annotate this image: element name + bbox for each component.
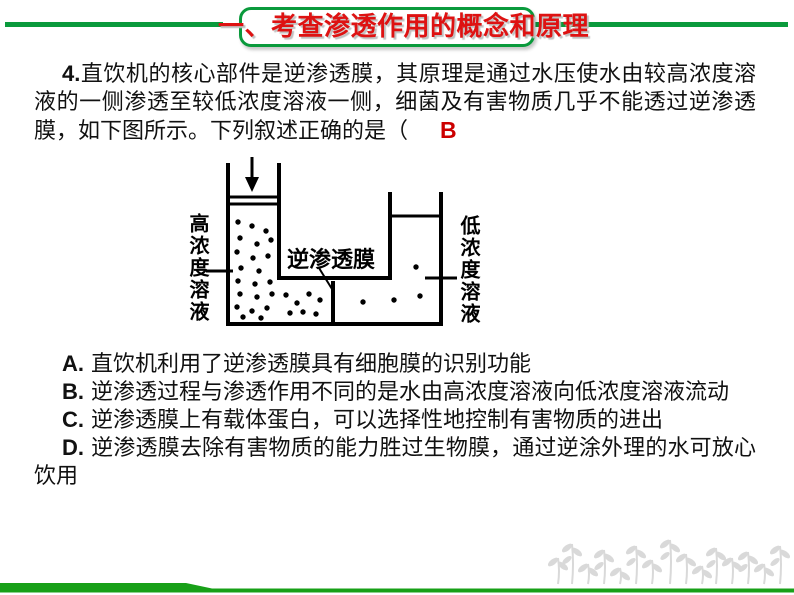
option-text: 逆渗透过程与渗透作用不同的是水由高浓度溶液向低浓度溶液流动 [91, 379, 729, 404]
solute-dot [267, 279, 272, 284]
solute-dot [238, 265, 243, 270]
solute-dot [360, 299, 365, 304]
option-text: 逆渗透膜去除有害物质的能力胜过生物膜，通过逆涂外理的水可放心饮用 [34, 435, 756, 488]
solute-dot [252, 281, 257, 286]
solute-dot [300, 309, 305, 314]
option-letter: B. [62, 379, 84, 404]
solute-dot [254, 294, 259, 299]
solute-dot [240, 314, 245, 319]
solute-dot [268, 237, 273, 242]
option-letter: D. [62, 435, 84, 460]
answer-letter: B [440, 117, 457, 143]
bottom-green-bar [0, 581, 794, 595]
plants-decoration-icon [548, 538, 790, 586]
page-title: 一、考查渗透作用的概念和原理 [218, 10, 589, 42]
option-letter: C. [62, 407, 84, 432]
solute-dot [234, 304, 239, 309]
solute-dot [235, 219, 240, 224]
solute-dot [237, 291, 242, 296]
solute-dot [265, 253, 270, 258]
option-C: C.逆渗透膜上有载体蛋白，可以选择性地控制有害物质的进出 [34, 406, 756, 434]
solute-dot [249, 223, 254, 228]
solute-dot [235, 278, 240, 283]
solute-dot [250, 255, 255, 260]
diagram-label-high-concentration: 高浓度溶液 [186, 213, 208, 323]
solute-dot [283, 292, 288, 297]
solute-dot [287, 310, 292, 315]
options-list: A.直饮机利用了逆渗透膜具有细胞膜的识别功能B.逆渗透过程与渗透作用不同的是水由… [34, 350, 756, 490]
piston [230, 197, 277, 204]
solute-dot [417, 293, 422, 298]
option-A: A.直饮机利用了逆渗透膜具有细胞膜的识别功能 [34, 350, 756, 378]
header-divider-line-left [5, 22, 223, 27]
solute-dot [237, 235, 242, 240]
solute-dot [258, 315, 263, 320]
question-text: 4.直饮机的核心部件是逆渗透膜，其原理是通过水压使水由较高浓度溶液的一侧渗透至较… [34, 60, 756, 145]
option-D: D.逆渗透膜去除有害物质的能力胜过生物膜，通过逆涂外理的水可放心饮用 [34, 434, 756, 490]
solute-dot [249, 308, 254, 313]
diagram-label-low-concentration: 低浓度溶液 [457, 215, 479, 325]
option-text: 直饮机利用了逆渗透膜具有细胞膜的识别功能 [91, 351, 531, 376]
option-B: B.逆渗透过程与渗透作用不同的是水由高浓度溶液向低浓度溶液流动 [34, 378, 756, 406]
diagram-label-membrane: 逆渗透膜 [287, 242, 375, 274]
solute-dot [269, 291, 274, 296]
question-number: 4. [62, 61, 80, 86]
solute-dot [313, 311, 318, 316]
solute-dot [306, 291, 311, 296]
solute-dot [391, 297, 396, 302]
solute-dot [256, 268, 261, 273]
option-text: 逆渗透膜上有载体蛋白，可以选择性地控制有害物质的进出 [91, 407, 663, 432]
solute-dot [263, 228, 268, 233]
option-letter: A. [62, 351, 84, 376]
question-body: 直饮机的核心部件是逆渗透膜，其原理是通过水压使水由较高浓度溶液的一侧渗透至较低浓… [34, 61, 756, 143]
solute-dot [294, 300, 299, 305]
solute-dot [254, 241, 259, 246]
solute-dot [264, 305, 269, 310]
pressure-arrowhead-icon [245, 177, 259, 192]
solute-dot [317, 297, 322, 302]
solute-dot [234, 249, 239, 254]
solute-dot [413, 264, 418, 269]
